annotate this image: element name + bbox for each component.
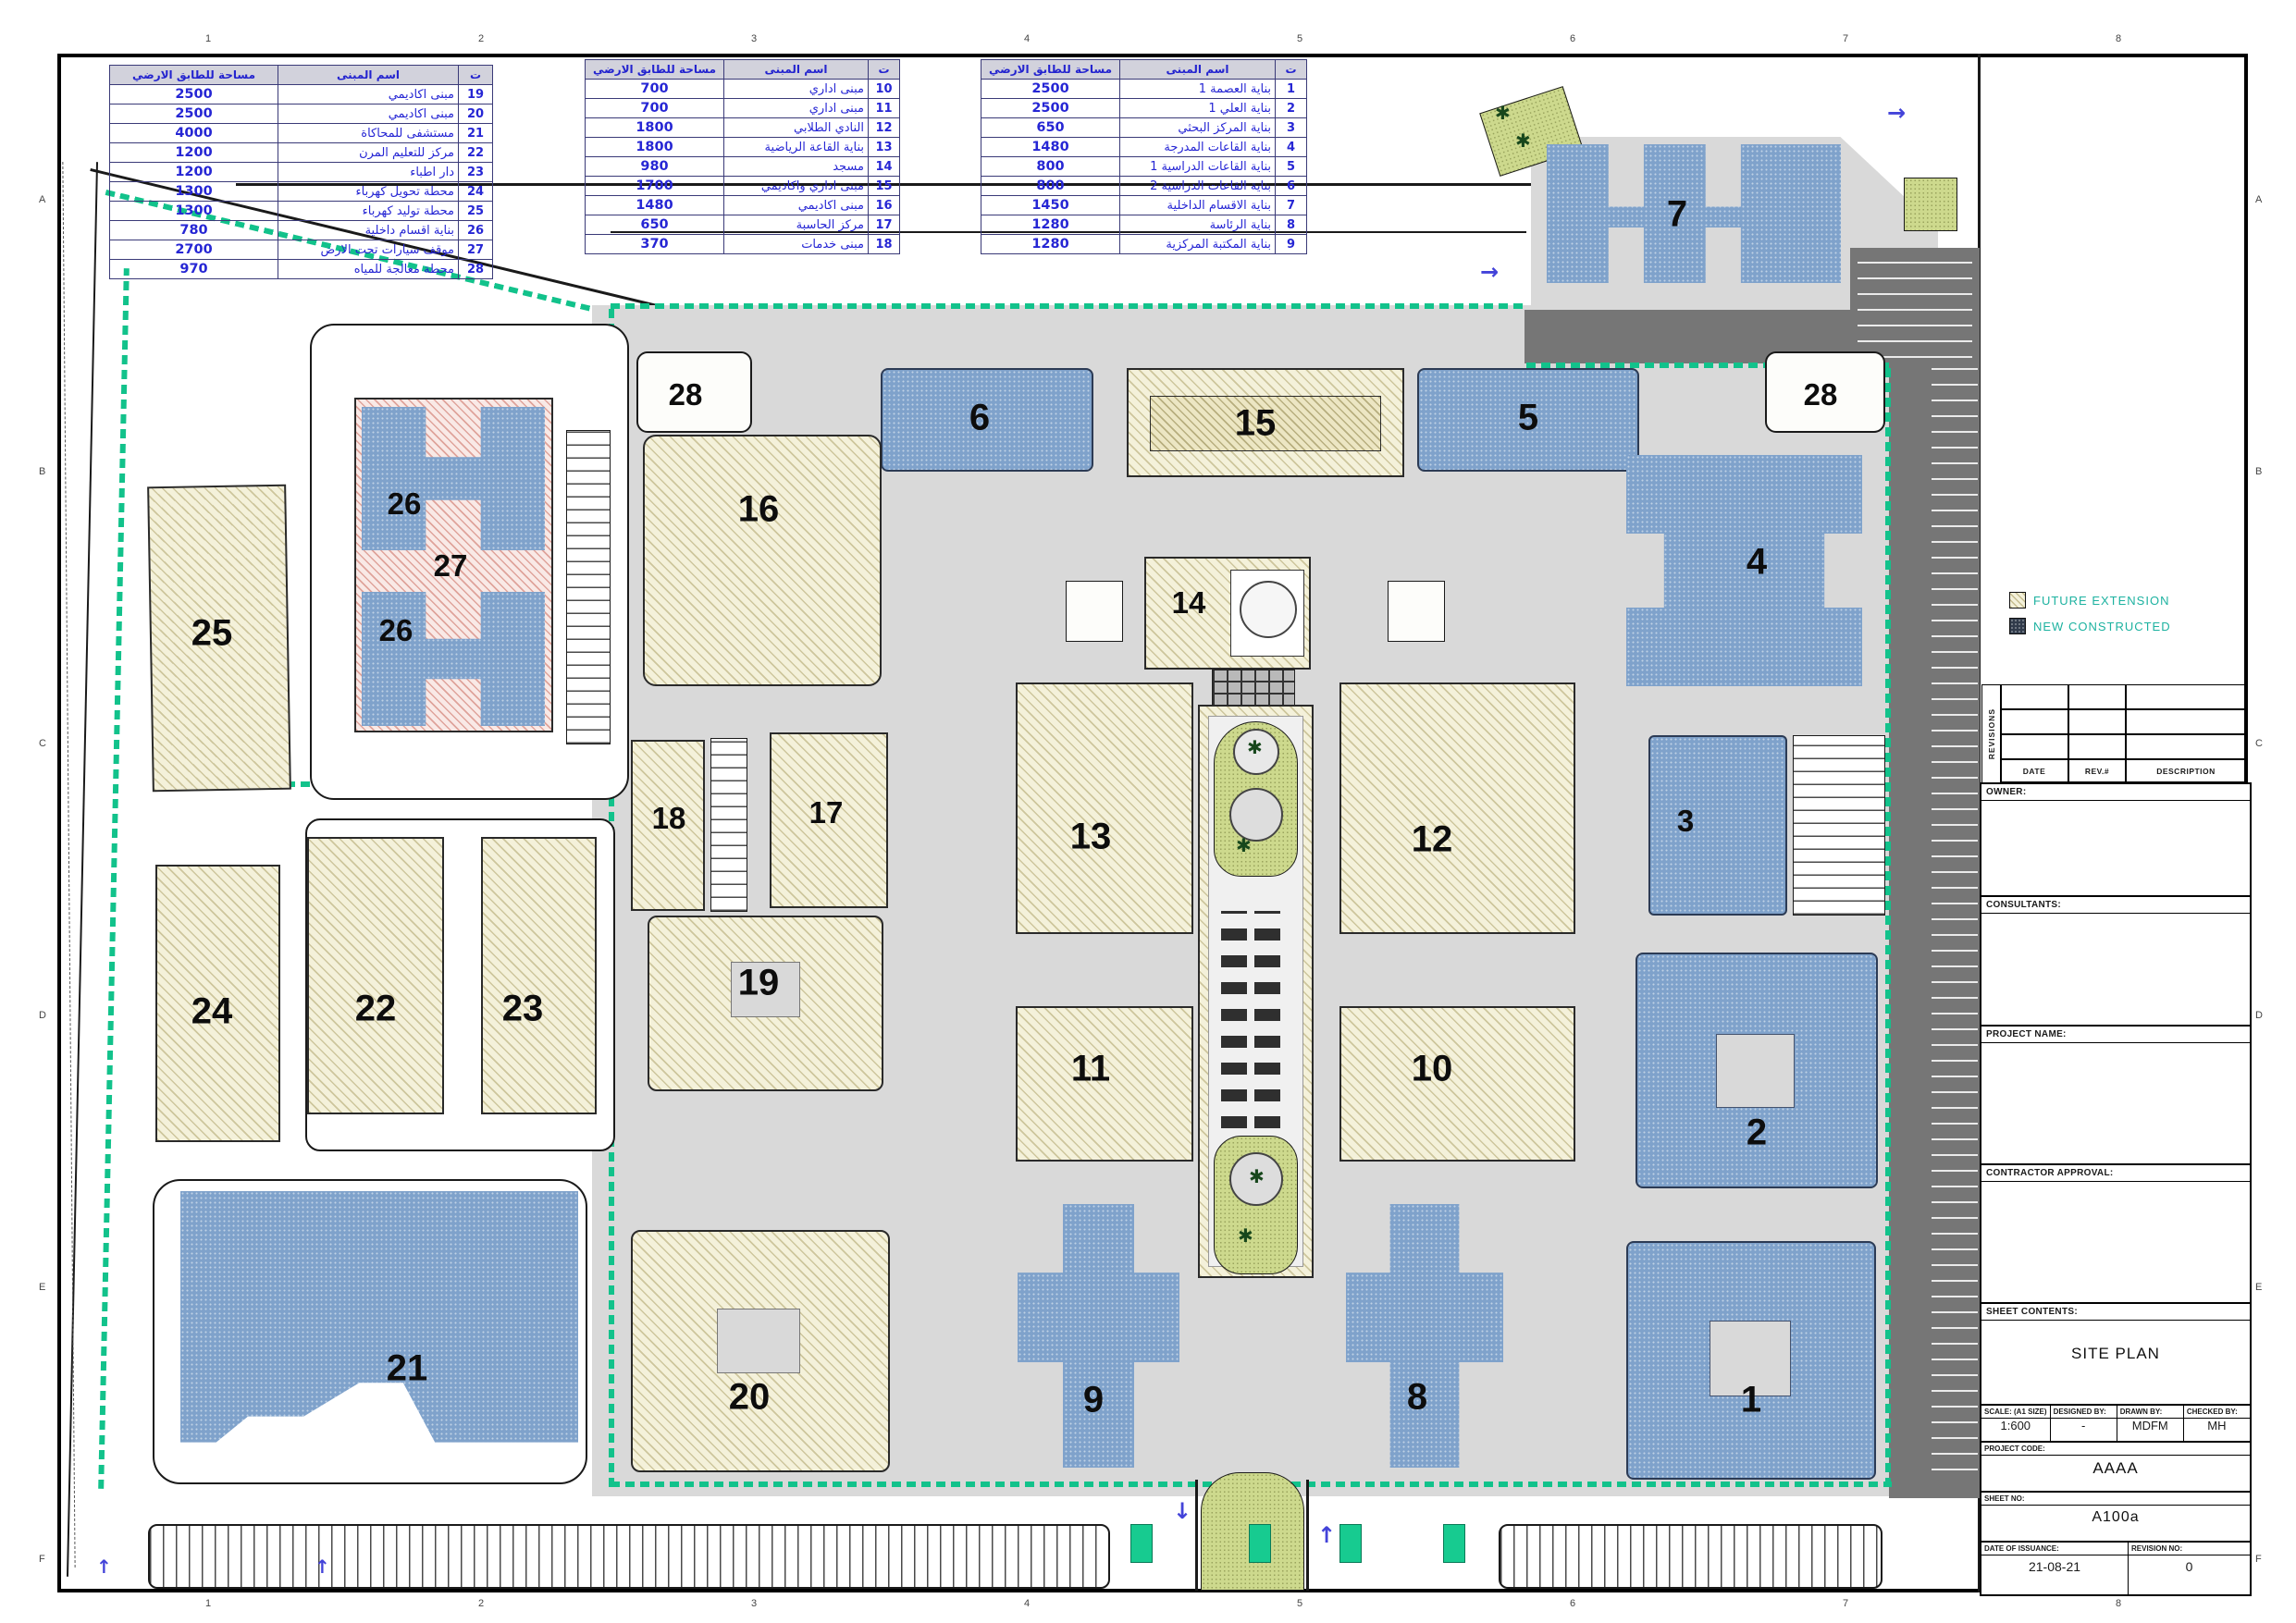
table-cell: مركز للتعليم المرن [278,143,459,163]
table-cell: 19 [459,85,493,105]
entry-arrow-up-icon: ↑ [1317,1524,1336,1546]
table-cell: 8 [1276,215,1307,235]
table-row: 1بناية العصمة 12500 [981,80,1307,99]
col-header-name: اسم المبنى [278,66,459,85]
table-cell: بناية العلي 1 [1120,99,1276,118]
building-15-label: 15 [1235,403,1277,445]
table-cell: 1480 [981,138,1120,157]
grid-ref-label: 4 [1024,33,1030,44]
revision-no-label: REVISION NO: [2129,1543,2250,1555]
scale-value: 1:600 [1981,1419,2050,1432]
building-7 [1547,144,1841,283]
drawn-by-value: MDFM [2117,1419,2183,1432]
table-row: 8بناية الرئاسة1280 [981,215,1307,235]
scale-row: SCALE: (A1 SIZE) 1:600 DESIGNED BY: - DR… [1980,1404,2252,1445]
table-cell: دار اطباء [278,163,459,182]
table-cell: 2500 [981,80,1120,99]
table-cell: مبنى اداري واكاديمي [724,177,869,196]
table-row: 15مبنى اداري واكاديمي1700 [586,177,900,196]
grid-ref-label: B [39,466,45,477]
building-5-label: 5 [1518,398,1538,439]
revisions-cell [2068,734,2126,759]
date-of-issuance-label: DATE OF ISSUANCE: [1981,1543,2128,1555]
scale-label: SCALE: (A1 SIZE) [1981,1406,2050,1419]
grid-ref-label: E [2255,1282,2262,1293]
building-28b-label: 28 [1804,377,1838,412]
checked-by-value: MH [2184,1419,2250,1432]
grid-ref-label: E [39,1282,45,1293]
grid-ref-label: C [2255,738,2263,749]
table-cell: 12 [869,118,900,138]
legend-table-1-9: ت اسم المبنى مساحة للطابق الارضي 1بناية … [981,59,1307,254]
building-9-label: 9 [1083,1380,1104,1421]
table-cell: 980 [586,157,724,177]
revisions-cell [2000,684,2068,709]
table-cell: 1200 [110,163,278,182]
future-extension-swatch [2009,592,2026,609]
revisions-cell [2126,709,2246,734]
table-row: 28محطة معالجة للمياه970 [110,260,493,279]
drawing-sheet: 12345678 12345678 ABCDEF ABCDEF ✱ ✱ [0,0,2296,1623]
table-cell: 1280 [981,215,1120,235]
table-row: 9بناية المكتبة المركزية1280 [981,235,1307,254]
table-row: 13بناية القاعة الرياضية1800 [586,138,900,157]
grid-ref-label: A [2255,194,2262,205]
parking-strip-26 [566,430,611,744]
table-cell: 10 [869,80,900,99]
table-cell: 24 [459,182,493,202]
future-extension-label: FUTURE EXTENSION [2033,594,2169,608]
scale-cell: SCALE: (A1 SIZE) 1:600 [1981,1406,2051,1443]
table-cell: 7 [1276,196,1307,215]
owner-label: OWNER: [1981,784,2250,801]
building-10 [1339,1006,1575,1162]
table-cell: 9 [1276,235,1307,254]
grid-ref-label: 1 [205,1598,211,1609]
hedge-campus-east [1885,363,1891,1487]
gate-booth [1339,1524,1362,1563]
checked-by-label: CHECKED BY: [2184,1406,2250,1419]
table-cell: 650 [586,215,724,235]
revisions-rev-header: REV.# [2068,759,2126,782]
table-cell: 1300 [110,182,278,202]
project-code-section: PROJECT CODE: AAAA [1980,1441,2252,1494]
south-parking-east [1499,1524,1882,1589]
table-row: 14مسجد980 [586,157,900,177]
grid-ref-label: D [39,1010,46,1021]
building-21-label: 21 [387,1348,428,1390]
parking-strip-18 [710,738,747,912]
sheet-contents-label: SHEET CONTENTS: [1981,1304,2250,1321]
table-cell: 5 [1276,157,1307,177]
drawn-by-label: DRAWN BY: [2117,1406,2183,1419]
table-cell: 25 [459,202,493,221]
table-cell: 1800 [586,138,724,157]
building-2-label: 2 [1747,1113,1767,1154]
table-row: 23دار اطباء1200 [110,163,493,182]
table-cell: بناية الاقسام الداخلية [1120,196,1276,215]
table-cell: مبنى اداري [724,80,869,99]
table-cell: 27 [459,240,493,260]
table-cell: مركز الحاسبة [724,215,869,235]
sheet-no-label: SHEET NO: [1981,1493,2250,1506]
table-row: 20مبنى اكاديمي2500 [110,105,493,124]
building-2-court [1716,1034,1795,1108]
table-cell: 650 [981,118,1120,138]
revisions-description-header: DESCRIPTION [2126,759,2246,782]
table-cell: 1300 [110,202,278,221]
entrance-road-edge-e [1306,1480,1309,1591]
consultants-section: CONSULTANTS: [1980,895,2252,1028]
building-3 [1648,735,1787,916]
table-cell: بناية القاعات المدرجة [1120,138,1276,157]
contractor-approval-section: CONTRACTOR APPROVAL: [1980,1163,2252,1306]
table-cell: مبنى اكاديمي [278,105,459,124]
palm-icon: ✱ [1238,1226,1253,1245]
revisions-table: DATE REV.# DESCRIPTION [2000,684,2246,782]
col-header-name: اسم المبنى [724,60,869,80]
table-cell: مبنى اكاديمي [278,85,459,105]
date-of-issuance-value: 21-08-21 [1981,1559,2128,1574]
drawn-by-cell: DRAWN BY: MDFM [2117,1406,2184,1443]
road-arrow-right-icon: → [1480,261,1499,283]
table-cell: مستشفى للمحاكاة [278,124,459,143]
table-row: 17مركز الحاسبة650 [586,215,900,235]
project-name-section: PROJECT NAME: [1980,1025,2252,1167]
building-11-label: 11 [1071,1049,1110,1090]
table-cell: 17 [869,215,900,235]
table-cell: بناية اقسام داخلية [278,221,459,240]
grid-ref-label: 3 [751,1598,757,1609]
entrance-road-edge-w [1195,1480,1198,1591]
mosque-dome [1240,581,1297,638]
table-row: 3بناية المركز البحثي650 [981,118,1307,138]
building-1-label: 1 [1741,1380,1761,1421]
revisions-cell [2068,684,2126,709]
table-cell: بناية الرئاسة [1120,215,1276,235]
building-28a-label: 28 [669,377,703,412]
east-parking-stalls [1932,333,1978,1470]
building-22 [307,837,444,1114]
gate-booth [1443,1524,1465,1563]
table-cell: 970 [110,260,278,279]
table-row: 12النادي الطلابي1800 [586,118,900,138]
grid-ref-label: C [39,738,46,749]
building-25-label: 25 [191,613,233,655]
grid-ref-label: 1 [205,33,211,44]
table-cell: بناية القاعة الرياضية [724,138,869,157]
gate-booth [1130,1524,1153,1563]
building-17-label: 17 [809,795,844,830]
table-cell: 2500 [110,105,278,124]
table-cell: 20 [459,105,493,124]
table-cell: مبنى اداري [724,99,869,118]
landscape-patch-e-of-7 [1904,178,1957,231]
table-cell: 1700 [586,177,724,196]
new-constructed-label: NEW CONSTRUCTED [2033,620,2171,633]
table-cell: 16 [869,196,900,215]
revisions-vertical-label: REVISIONS [1981,684,2002,784]
table-row: 2بناية العلي 12500 [981,99,1307,118]
grid-ref-label: 8 [2116,1598,2121,1609]
grid-ref-label: B [2255,466,2262,477]
table-cell: 26 [459,221,493,240]
table-cell: محطة معالجة للمياه [278,260,459,279]
revisions-cell [2000,709,2068,734]
legend-table-10-18: ت اسم المبنى مساحة للطابق الارضي 10مبنى … [585,59,900,254]
table-cell: 2500 [981,99,1120,118]
table-cell: 370 [586,235,724,254]
grid-ref-label: 6 [1570,1598,1575,1609]
designed-by-cell: DESIGNED BY: - [2051,1406,2117,1443]
tree-icon: ✱ [1515,131,1531,150]
revisions-cell [2126,684,2246,709]
checked-by-cell: CHECKED BY: MH [2184,1406,2250,1443]
grid-ref-label: 3 [751,33,757,44]
table-cell: 28 [459,260,493,279]
consultants-label: CONSULTANTS: [1981,897,2250,914]
gate-booth [1249,1524,1271,1563]
building-16-label: 16 [738,489,780,531]
col-header-area: مساحة للطابق الارضي [110,66,278,85]
table-cell: 13 [869,138,900,157]
grid-ref-label: 2 [478,1598,484,1609]
grid-ref-label: 5 [1297,1598,1302,1609]
table-cell: بناية القاعات الدراسية 2 [1120,177,1276,196]
building-7-label: 7 [1667,194,1687,236]
table-cell: 18 [869,235,900,254]
building-20-court [717,1309,800,1373]
building-23 [481,837,597,1114]
building-13-label: 13 [1070,817,1112,858]
grid-ref-label: F [39,1554,45,1565]
table-cell: بناية المركز البحثي [1120,118,1276,138]
col-header-num: ت [869,60,900,80]
grid-ref-label: 2 [478,33,484,44]
table-cell: 6 [1276,177,1307,196]
hedge-campus-top [611,303,1526,309]
ne-parking-stalls [1858,253,1972,358]
table-row: 19مبنى اكاديمي2500 [110,85,493,105]
issuance-row: DATE OF ISSUANCE: 21-08-21 REVISION NO: … [1980,1541,2252,1596]
revisions-cell [2068,709,2126,734]
sheet-contents-value: SITE PLAN [1981,1345,2250,1363]
table-cell: النادي الطلابي [724,118,869,138]
revisions-cell [2126,734,2246,759]
table-cell: 700 [586,80,724,99]
date-of-issuance-cell: DATE OF ISSUANCE: 21-08-21 [1981,1543,2129,1594]
grid-ref-label: D [2255,1010,2263,1021]
col-header-name: اسم المبنى [1120,60,1276,80]
grid-ref-label: 4 [1024,1598,1030,1609]
palm-icon: ✱ [1247,738,1263,756]
building-4-label: 4 [1747,542,1767,584]
building-6-label: 6 [969,398,990,439]
grid-ref-label: 7 [1843,1598,1848,1609]
table-row: 4بناية القاعات المدرجة1480 [981,138,1307,157]
building-10-label: 10 [1412,1049,1453,1090]
table-cell: 800 [981,157,1120,177]
building-12-label: 12 [1412,819,1453,861]
grid-ref-label: A [39,194,45,205]
table-cell: 780 [110,221,278,240]
south-parking-west [148,1524,1110,1589]
building-19-label: 19 [738,963,780,1004]
building-16 [643,435,882,686]
col-header-num: ت [459,66,493,85]
new-constructed-swatch [2009,618,2026,634]
contractor-approval-label: CONTRACTOR APPROVAL: [1981,1165,2250,1182]
project-code-value: AAAA [1981,1459,2250,1478]
building-20-label: 20 [729,1377,771,1419]
table-row: 11مبنى اداري700 [586,99,900,118]
road-arrow-right-icon: → [1887,102,1906,124]
table-cell: 2 [1276,99,1307,118]
table-row: 24محطة تحويل كهرباء1300 [110,182,493,202]
owner-section: OWNER: [1980,782,2252,899]
col-header-area: مساحة للطابق الارضي [586,60,724,80]
table-row: 18مبنى خدمات370 [586,235,900,254]
grid-ref-label: 8 [2116,33,2121,44]
legend-item-new-constructed: NEW CONSTRUCTED [2009,618,2171,634]
building-13 [1016,682,1193,934]
table-cell: 800 [981,177,1120,196]
table-cell: محطة تحويل كهرباء [278,182,459,202]
legend-table-19-28: ت اسم المبنى مساحة للطابق الارضي 19مبنى … [109,65,493,279]
table-cell: بناية القاعات الدراسية 1 [1120,157,1276,177]
tree-icon: ✱ [1495,104,1511,122]
sheet-no-value: A100a [1981,1509,2250,1526]
project-code-label: PROJECT CODE: [1981,1443,2250,1456]
legend-item-future-extension: FUTURE EXTENSION [2009,592,2169,609]
table-cell: 1450 [981,196,1120,215]
table-row: 21مستشفى للمحاكاة4000 [110,124,493,143]
table-cell: 21 [459,124,493,143]
table-row: 22مركز للتعليم المرن1200 [110,143,493,163]
revisions-cell [2000,734,2068,759]
table-cell: 3 [1276,118,1307,138]
grid-ref-label: 6 [1570,33,1575,44]
table-row: 7بناية الاقسام الداخلية1450 [981,196,1307,215]
table-row: 10مبنى اداري700 [586,80,900,99]
building-26b-label: 26 [379,613,414,648]
table-cell: بناية العصمة 1 [1120,80,1276,99]
revision-no-value: 0 [2129,1559,2250,1574]
table-cell: 14 [869,157,900,177]
revision-no-cell: REVISION NO: 0 [2129,1543,2250,1594]
table-cell: 2500 [110,85,278,105]
entry-arrow-down-icon: ↓ [1173,1500,1191,1522]
table-row: 27موقف سيارات تحت الارض2700 [110,240,493,260]
grid-ref-label: 7 [1843,33,1848,44]
table-cell: 4000 [110,124,278,143]
table-cell: 1800 [586,118,724,138]
entry-arrow-up-icon: ↑ [96,1557,112,1576]
table-cell: بناية المكتبة المركزية [1120,235,1276,254]
parking-strip-3 [1793,735,1885,916]
building-24-label: 24 [191,991,233,1033]
building-22-label: 22 [355,989,397,1030]
table-cell: 15 [869,177,900,196]
table-cell: 22 [459,143,493,163]
table-cell: 700 [586,99,724,118]
table-row: 16مبنى اكاديمي1480 [586,196,900,215]
table-cell: 2700 [110,240,278,260]
kiosk-east [1388,581,1445,642]
boulevard-planters-west [1221,911,1247,1128]
building-26a-label: 26 [388,486,422,522]
kiosk-west [1066,581,1123,642]
table-cell: 4 [1276,138,1307,157]
boulevard-planters-east [1254,911,1280,1128]
grid-ref-label: F [2255,1554,2262,1565]
table-cell: محطة توليد كهرباء [278,202,459,221]
table-cell: مبنى خدمات [724,235,869,254]
building-8-label: 8 [1407,1377,1427,1419]
table-cell: مسجد [724,157,869,177]
building-27-label: 27 [434,548,468,584]
grid-ref-label: 5 [1297,33,1302,44]
palm-icon: ✱ [1249,1167,1265,1186]
table-cell: 1480 [586,196,724,215]
table-cell: 1 [1276,80,1307,99]
table-cell: 1280 [981,235,1120,254]
entry-arrow-up-icon: ↑ [315,1557,330,1576]
table-row: 5بناية القاعات الدراسية 1800 [981,157,1307,177]
table-row: 26بناية اقسام داخلية780 [110,221,493,240]
designed-by-value: - [2051,1419,2117,1432]
table-row: 6بناية القاعات الدراسية 2800 [981,177,1307,196]
table-cell: مبنى اكاديمي [724,196,869,215]
designed-by-label: DESIGNED BY: [2051,1406,2117,1419]
building-18-label: 18 [652,801,686,836]
building-3-label: 3 [1677,804,1694,839]
palm-icon: ✱ [1236,836,1252,855]
revisions-date-header: DATE [2000,759,2068,782]
project-name-label: PROJECT NAME: [1981,1027,2250,1043]
table-cell: موقف سيارات تحت الارض [278,240,459,260]
building-23-label: 23 [502,989,544,1030]
table-cell: 11 [869,99,900,118]
table-cell: 1200 [110,143,278,163]
building-12 [1339,682,1575,934]
sheet-no-section: SHEET NO: A100a [1980,1491,2252,1544]
table-cell: 23 [459,163,493,182]
sheet-contents-section: SHEET CONTENTS: SITE PLAN [1980,1302,2252,1408]
col-header-area: مساحة للطابق الارضي [981,60,1120,80]
building-14-label: 14 [1172,585,1206,621]
col-header-num: ت [1276,60,1307,80]
table-row: 25محطة توليد كهرباء1300 [110,202,493,221]
